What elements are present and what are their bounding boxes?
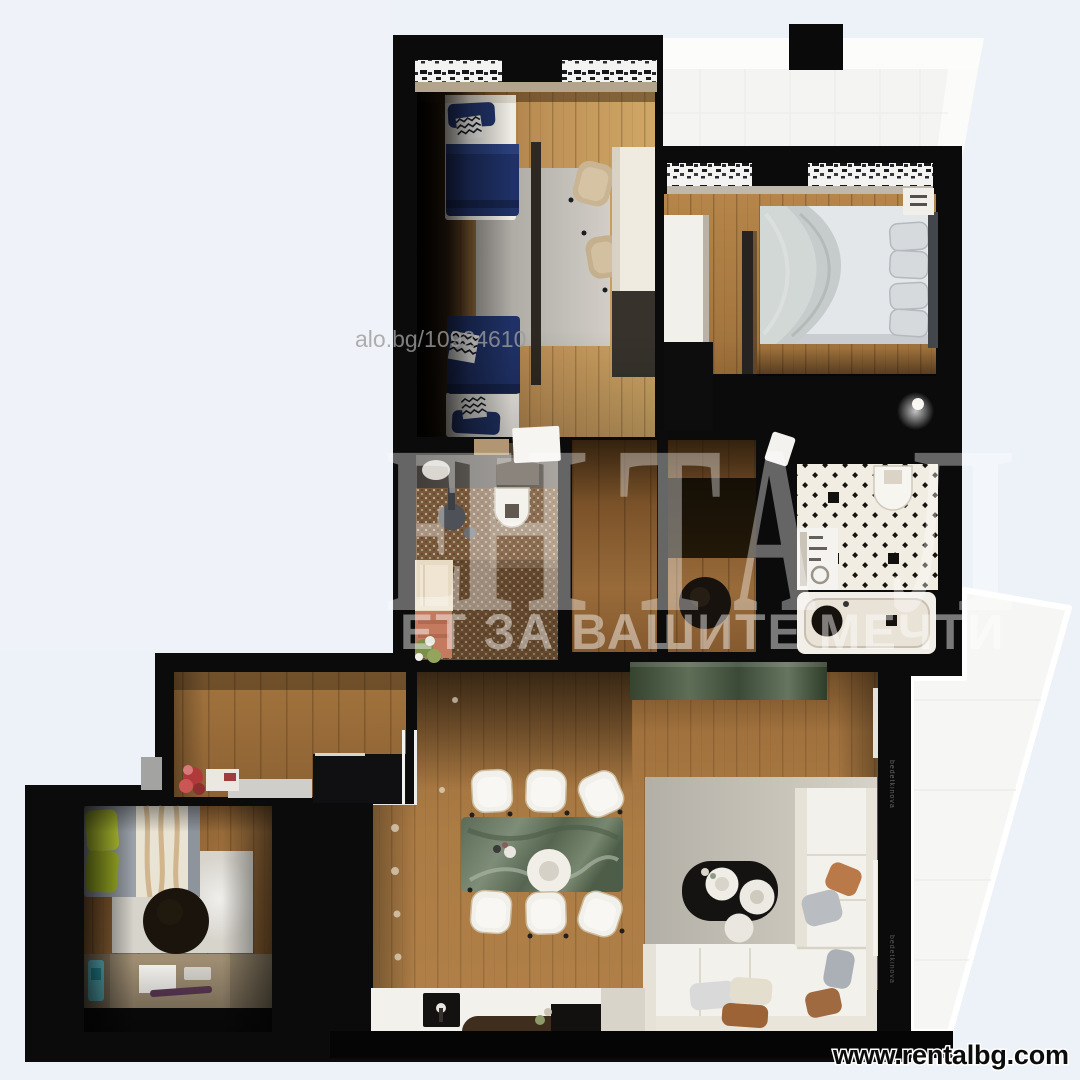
svg-text:bedetkinova: bedetkinova	[888, 935, 895, 984]
svg-text:www.rentalbg.com: www.rentalbg.com	[832, 1040, 1069, 1070]
svg-text:ЕТ ЗА ВАШИТЕ МЕЧТИ: ЕТ ЗА ВАШИТЕ МЕЧТИ	[400, 604, 1005, 660]
svg-text:bedetkinova: bedetkinova	[888, 760, 895, 809]
svg-text:alo.bg/10924610: alo.bg/10924610	[355, 326, 526, 352]
